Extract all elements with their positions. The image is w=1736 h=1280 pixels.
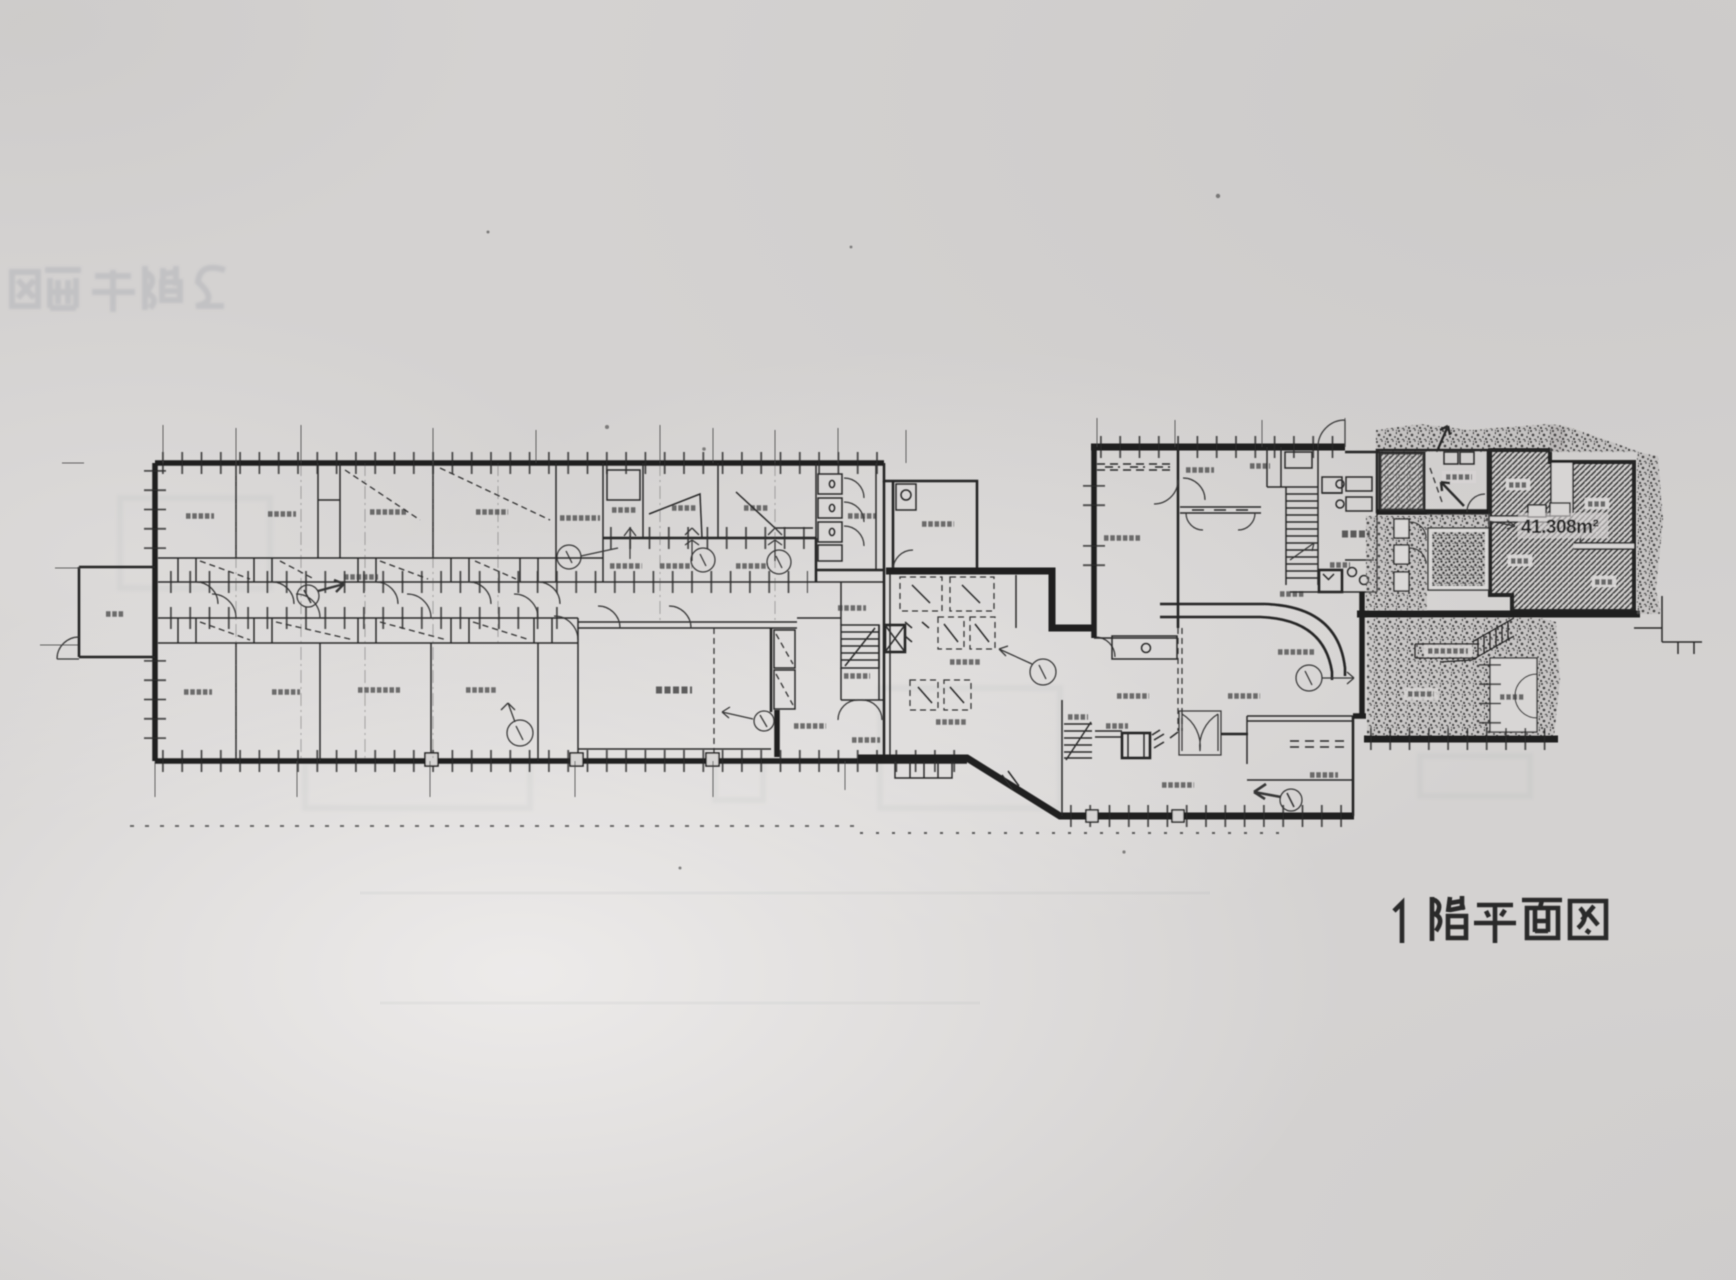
svg-text:41.308m²: 41.308m² <box>1521 517 1599 538</box>
